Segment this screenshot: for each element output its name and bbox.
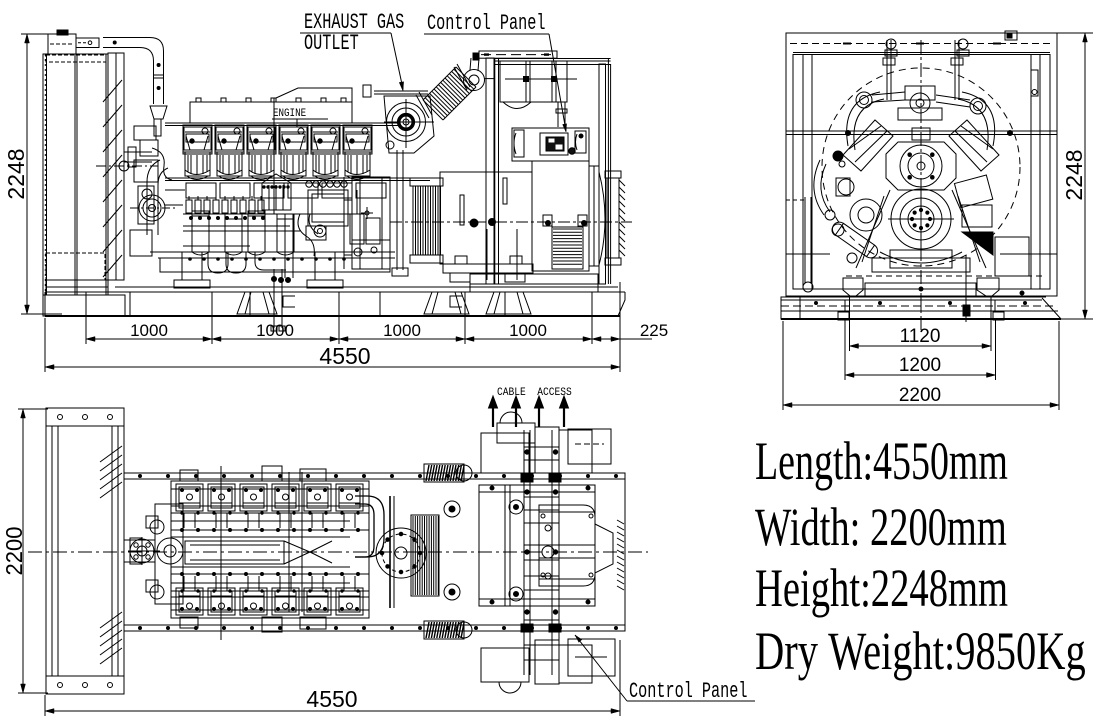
svg-text:ENGINE: ENGINE [273, 107, 306, 119]
svg-text:Control Panel: Control Panel [427, 10, 546, 36]
svg-text:CABLE ACCESS: CABLE ACCESS [497, 386, 572, 399]
svg-text:1120: 1120 [900, 326, 941, 347]
svg-text:4550: 4550 [306, 686, 357, 712]
svg-text:Width: 2200mm: Width: 2200mm [755, 498, 1007, 558]
svg-text:2200: 2200 [2, 527, 28, 576]
svg-text:OUTLET: OUTLET [304, 30, 359, 56]
svg-text:Height:2248mm: Height:2248mm [755, 559, 1008, 619]
svg-text:1000: 1000 [256, 321, 294, 340]
svg-text:2248: 2248 [1061, 149, 1087, 200]
svg-text:Length:4550mm: Length:4550mm [755, 432, 1008, 492]
svg-text:1000: 1000 [509, 321, 547, 340]
svg-text:2248: 2248 [3, 148, 29, 199]
svg-text:4550: 4550 [319, 343, 370, 369]
svg-text:Dry Weight:9850Kg: Dry Weight:9850Kg [755, 621, 1086, 681]
svg-text:2200: 2200 [899, 385, 941, 406]
svg-text:Control Panel: Control Panel [629, 678, 748, 704]
svg-text:1200: 1200 [899, 355, 941, 376]
svg-text:1000: 1000 [130, 321, 168, 340]
svg-text:1000: 1000 [383, 321, 421, 340]
svg-text:225: 225 [640, 321, 668, 340]
